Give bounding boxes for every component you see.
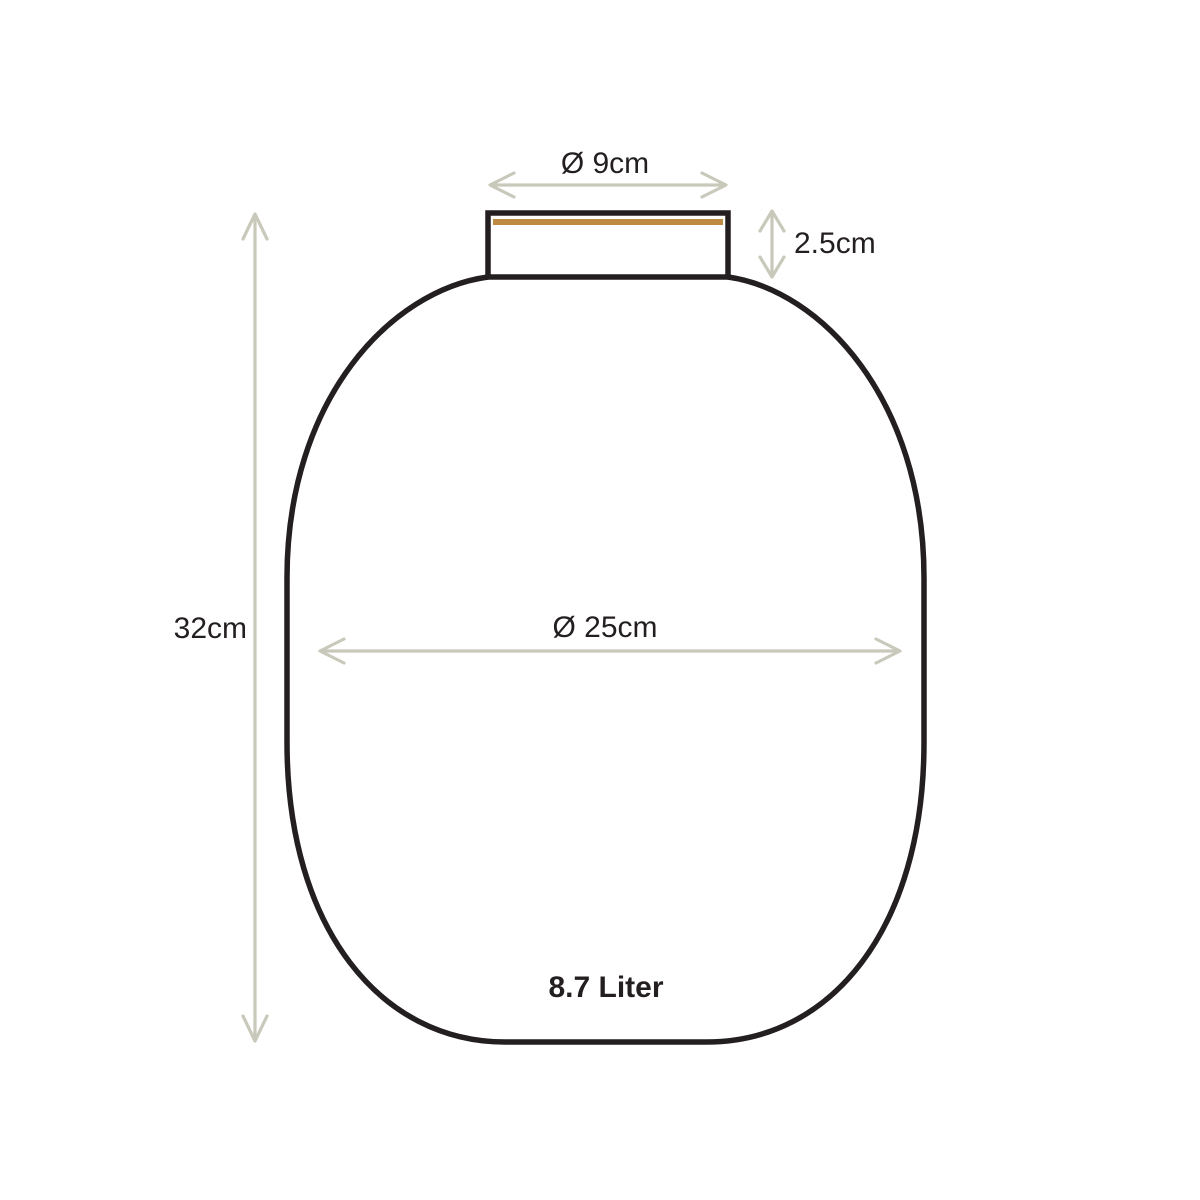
vase-dimension-diagram: Ø 9cm 2.5cm 32cm Ø 25cm 8.7 Liter bbox=[0, 0, 1200, 1200]
opening-diameter-label: Ø 9cm bbox=[561, 147, 649, 180]
dimension-diagram-canvas: Ø 9cm 2.5cm 32cm Ø 25cm 8.7 Liter bbox=[0, 0, 1200, 1200]
vase-body-outline bbox=[287, 277, 924, 1042]
total-height-label: 32cm bbox=[174, 612, 247, 645]
volume-label: 8.7 Liter bbox=[548, 971, 663, 1004]
neck-height-label: 2.5cm bbox=[794, 227, 876, 260]
vase-body bbox=[287, 277, 924, 1042]
body-diameter-label: Ø 25cm bbox=[552, 611, 657, 644]
neck-height-arrow bbox=[760, 211, 784, 277]
